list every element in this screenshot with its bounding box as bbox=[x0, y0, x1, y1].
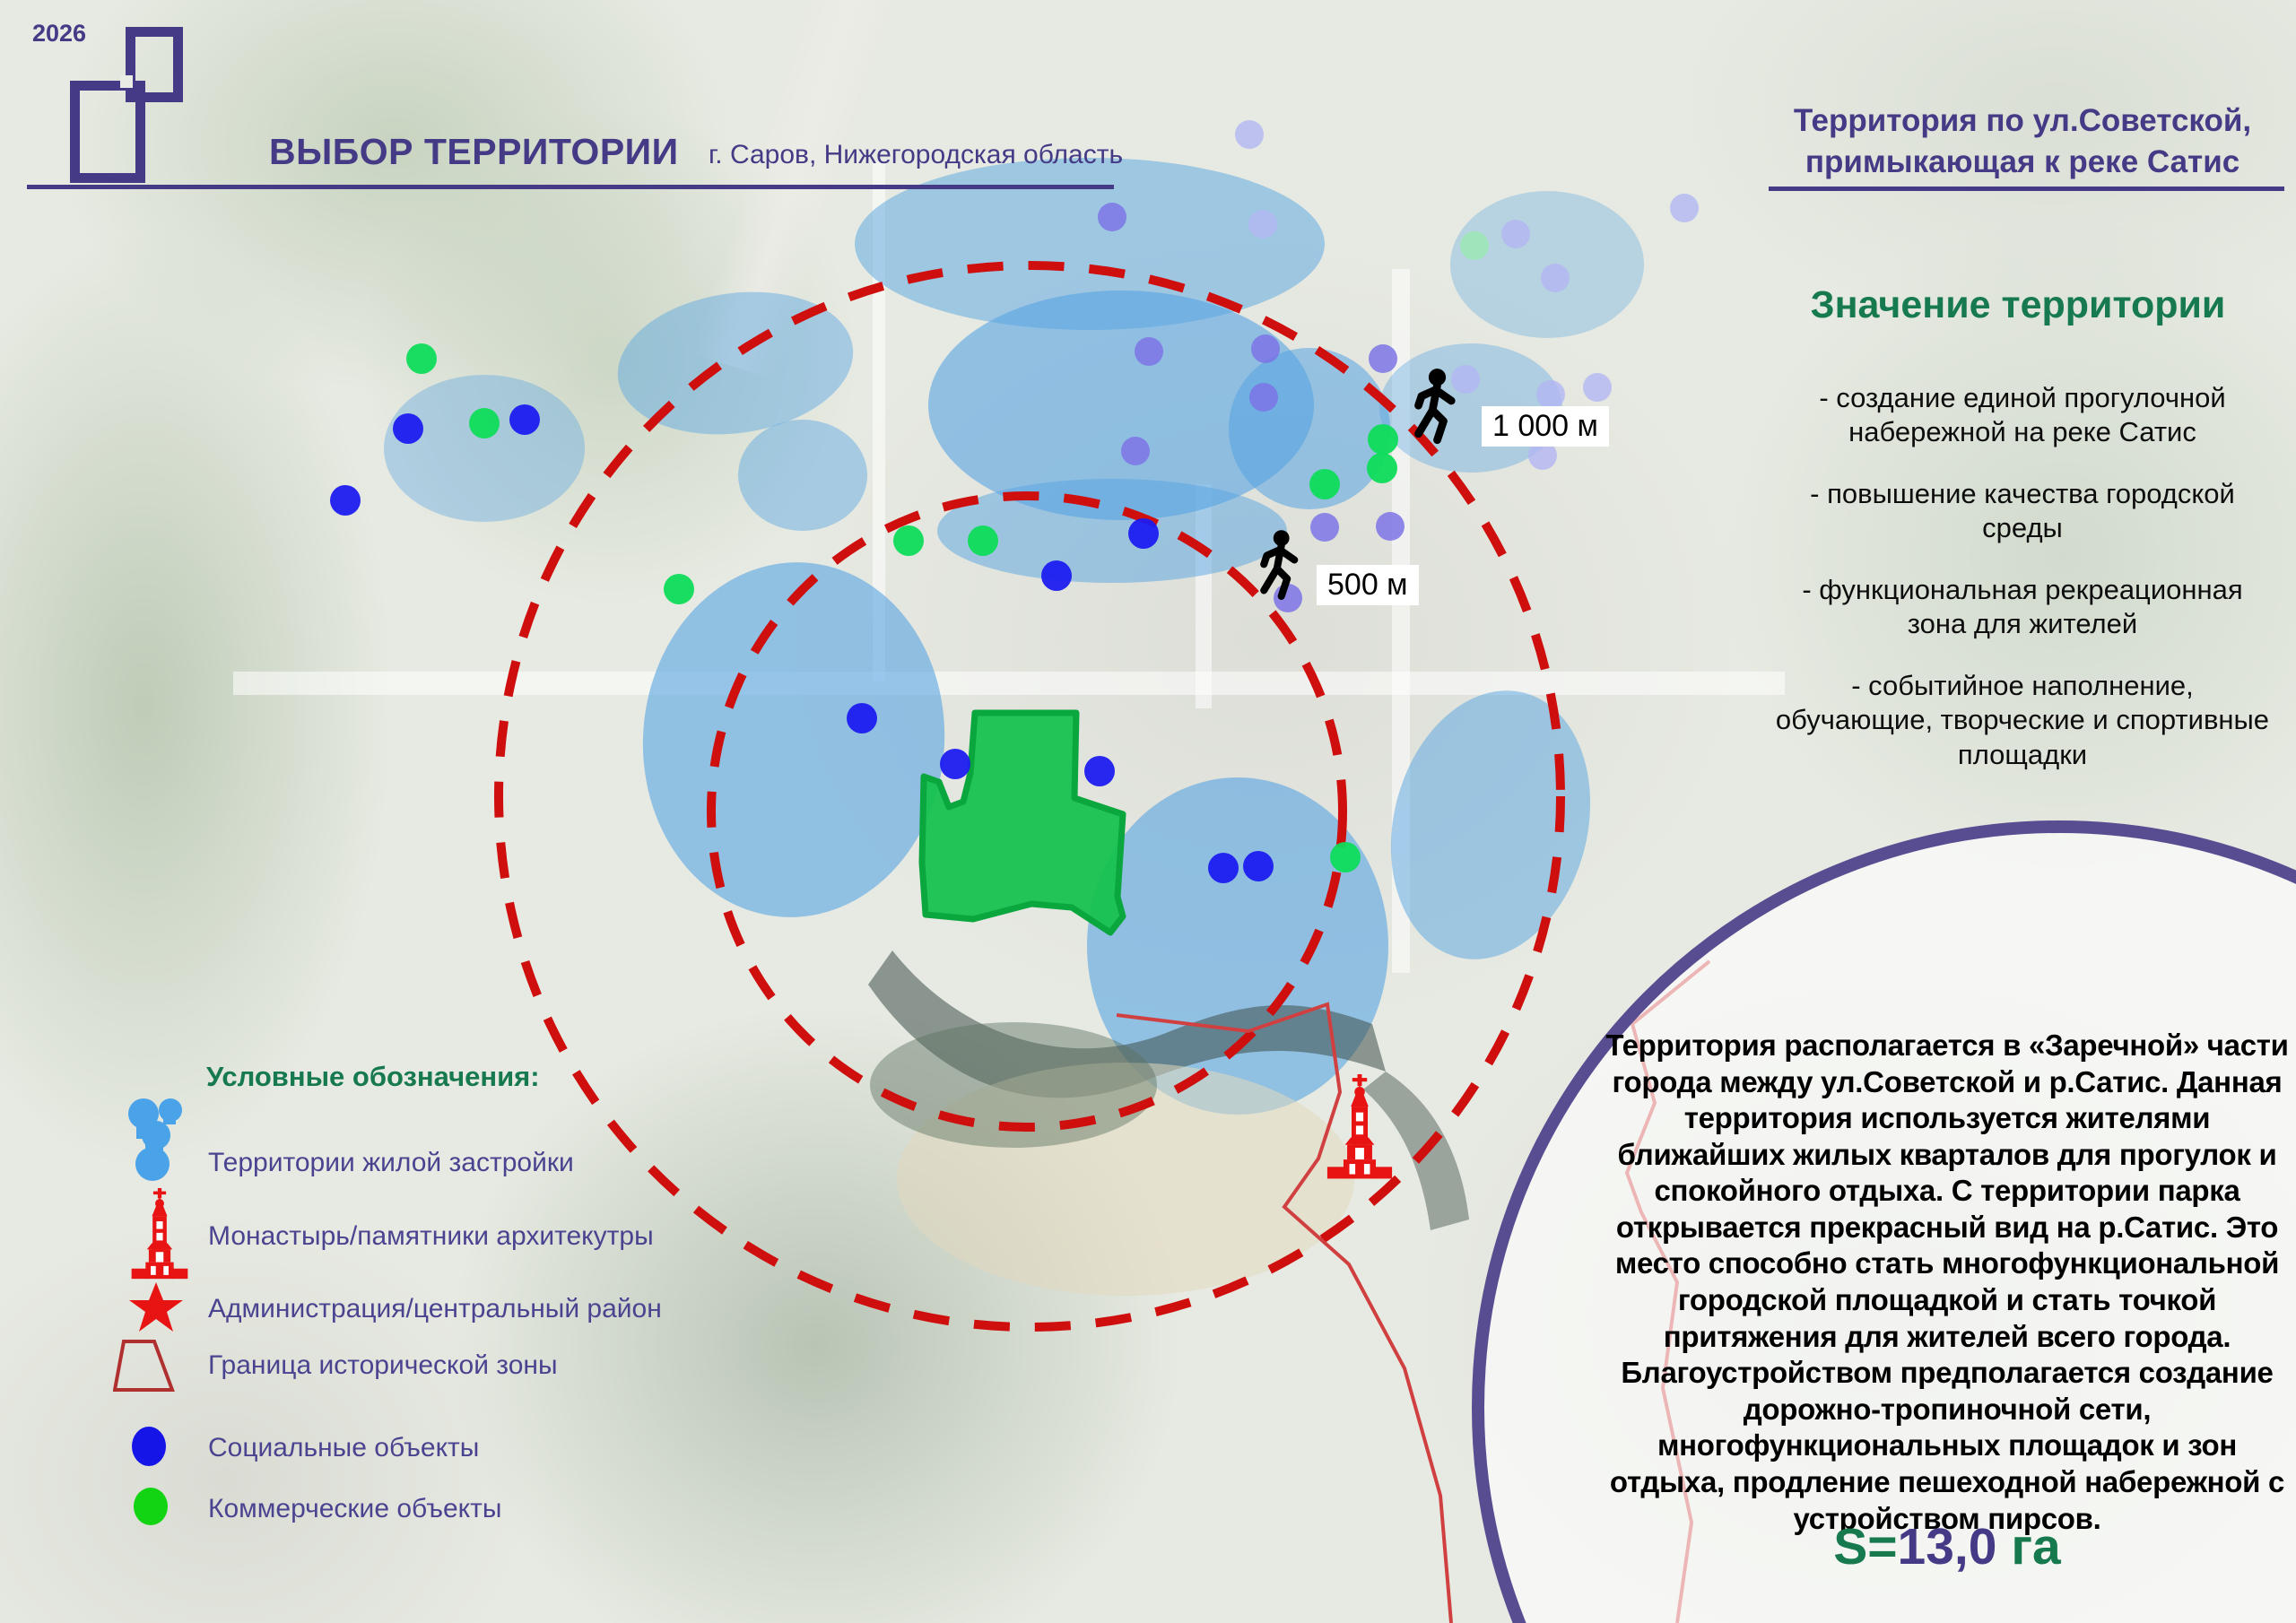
social-object-dot bbox=[1501, 220, 1530, 248]
social-object-dot bbox=[1376, 512, 1405, 541]
social-object-dot bbox=[1251, 334, 1280, 363]
commercial-object-dot bbox=[1460, 231, 1489, 260]
commercial-object-dot bbox=[469, 408, 500, 438]
area-prefix: S= bbox=[1833, 1518, 1897, 1575]
social-object-dot bbox=[1274, 584, 1302, 612]
social-object-dot bbox=[393, 413, 423, 444]
legend-item-label: Территории жилой застройки bbox=[208, 1148, 574, 1178]
social-object-dot bbox=[1583, 373, 1612, 402]
commercial-object-dot bbox=[893, 525, 924, 556]
territory-area: S=13,0 га bbox=[1605, 1517, 2289, 1576]
social-object-dot bbox=[1541, 264, 1570, 292]
social-object-dot bbox=[330, 485, 361, 516]
social-object-dot bbox=[1135, 337, 1163, 366]
social-object-dot bbox=[1310, 513, 1339, 542]
significance-bullets: - создание единой прогулочной набережной… bbox=[1771, 381, 2274, 799]
social-object-dot bbox=[940, 749, 970, 779]
commercial-object-dot bbox=[1330, 842, 1361, 872]
social-object-dot bbox=[1128, 518, 1159, 549]
legend-item-label: Граница исторической зоны bbox=[208, 1350, 558, 1381]
commercial-object-icon bbox=[131, 1485, 170, 1528]
header-rule bbox=[1769, 187, 2284, 191]
residential-zone-icon bbox=[124, 1096, 196, 1189]
social-object-dot bbox=[1041, 560, 1072, 591]
administration-star-icon bbox=[127, 1280, 185, 1334]
year-label: 2026 bbox=[32, 20, 86, 48]
historic-zone-boundary-icon bbox=[113, 1338, 178, 1395]
site-title-line1: Территория по ул.Советской, bbox=[1762, 100, 2283, 142]
radius-label-1000m: 1 000 м bbox=[1482, 406, 1609, 447]
social-object-icon bbox=[129, 1424, 169, 1469]
legend-item-label: Монастырь/памятники архитекутры bbox=[208, 1221, 654, 1252]
significance-bullet: - событийное наполнение, обучающие, твор… bbox=[1771, 669, 2274, 772]
social-object-dot bbox=[1121, 437, 1150, 465]
commercial-object-dot bbox=[1367, 453, 1397, 483]
social-object-dot bbox=[1248, 210, 1277, 239]
site-title: Территория по ул.Советской, примыкающая … bbox=[1762, 100, 2283, 183]
social-object-dot bbox=[1670, 194, 1699, 222]
area-unit: га bbox=[1996, 1518, 2060, 1575]
page-title: ВЫБОР ТЕРРИТОРИИ bbox=[269, 131, 679, 173]
site-title-line2: примыкающая к реке Сатис bbox=[1762, 142, 2283, 183]
area-value: 13,0 bbox=[1898, 1518, 1997, 1575]
slide-canvas: 2026 ВЫБОР ТЕРРИТОРИИ г. Саров, Нижегоро… bbox=[0, 0, 2296, 1623]
commercial-object-dot bbox=[406, 343, 437, 374]
social-object-dot bbox=[1235, 120, 1264, 149]
page-subtitle: г. Саров, Нижегородская область bbox=[709, 140, 1123, 170]
significance-heading: Значение территории bbox=[1758, 283, 2278, 327]
commercial-object-dot bbox=[664, 574, 694, 604]
legend-heading: Условные обозначения: bbox=[206, 1061, 540, 1093]
significance-bullet: - функциональная рекреационная зона для … bbox=[1771, 573, 2274, 642]
radius-label-500m: 500 м bbox=[1317, 565, 1419, 605]
monastery-icon bbox=[118, 1188, 201, 1281]
header-rule bbox=[27, 185, 1114, 189]
territory-description: Территория располагается в «Заречной» ча… bbox=[1605, 1028, 2289, 1537]
social-object-dot bbox=[509, 404, 540, 435]
social-object-dot bbox=[1243, 851, 1274, 881]
social-object-dot bbox=[1084, 756, 1115, 786]
social-object-dot bbox=[1208, 853, 1239, 883]
social-object-dot bbox=[1369, 344, 1397, 373]
residential-zones bbox=[384, 158, 1644, 1115]
territory-polygon bbox=[922, 713, 1123, 933]
legend-item-label: Администрация/центральный район bbox=[208, 1294, 662, 1324]
legend-item-label: Социальные объекты bbox=[208, 1433, 479, 1463]
social-object-dot bbox=[1249, 383, 1278, 412]
social-object-dot bbox=[847, 703, 877, 733]
significance-bullet: - создание единой прогулочной набережной… bbox=[1771, 381, 2274, 450]
legend-item-label: Коммерческие объекты bbox=[208, 1494, 501, 1524]
commercial-object-dot bbox=[1368, 424, 1398, 455]
logo-icon bbox=[70, 81, 145, 183]
logo-icon bbox=[120, 75, 133, 88]
commercial-object-dot bbox=[1309, 469, 1340, 499]
social-object-dot bbox=[1451, 365, 1480, 394]
social-object-dot bbox=[1098, 203, 1126, 231]
significance-bullet: - повышение качества городской среды bbox=[1771, 477, 2274, 546]
commercial-object-dot bbox=[968, 525, 998, 556]
social-object-dot bbox=[1536, 380, 1565, 409]
